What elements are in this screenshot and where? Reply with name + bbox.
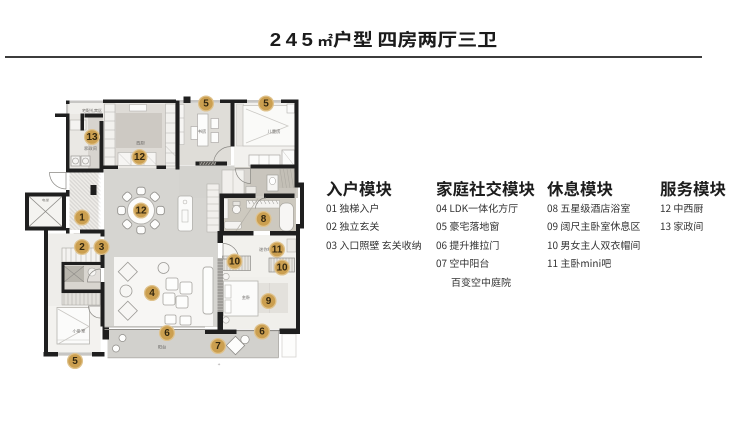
svg-text:10: 10 xyxy=(276,263,288,274)
svg-text:1: 1 xyxy=(79,213,85,224)
svg-text:10: 10 xyxy=(229,257,241,268)
svg-text:西厨: 西厨 xyxy=(136,141,145,147)
svg-text:主卧: 主卧 xyxy=(242,295,251,301)
svg-text:6: 6 xyxy=(164,328,170,339)
svg-text:12: 12 xyxy=(134,152,146,163)
svg-text:儿童房: 儿童房 xyxy=(268,128,281,135)
svg-text:+: + xyxy=(218,361,221,368)
svg-text:13: 13 xyxy=(86,132,98,143)
svg-text:12: 12 xyxy=(135,206,147,217)
svg-text:电梯: 电梯 xyxy=(42,198,50,204)
svg-text:5: 5 xyxy=(263,99,269,110)
svg-text:2: 2 xyxy=(79,242,85,253)
svg-text:阳台: 阳台 xyxy=(158,345,167,351)
svg-text:9: 9 xyxy=(266,296,272,307)
svg-text:7: 7 xyxy=(215,341,221,352)
svg-text:5: 5 xyxy=(72,356,78,367)
svg-text:家政间: 家政间 xyxy=(84,146,97,152)
svg-text:5: 5 xyxy=(203,99,209,110)
svg-text:11: 11 xyxy=(272,245,283,256)
svg-text:宅配礼宾区: 宅配礼宾区 xyxy=(82,108,102,114)
svg-text:3: 3 xyxy=(99,242,105,253)
svg-text:4: 4 xyxy=(149,288,155,299)
svg-text:8: 8 xyxy=(261,214,267,225)
svg-text:6: 6 xyxy=(259,327,265,338)
svg-text:书房: 书房 xyxy=(198,128,207,135)
svg-text:小卧室: 小卧室 xyxy=(73,329,87,335)
